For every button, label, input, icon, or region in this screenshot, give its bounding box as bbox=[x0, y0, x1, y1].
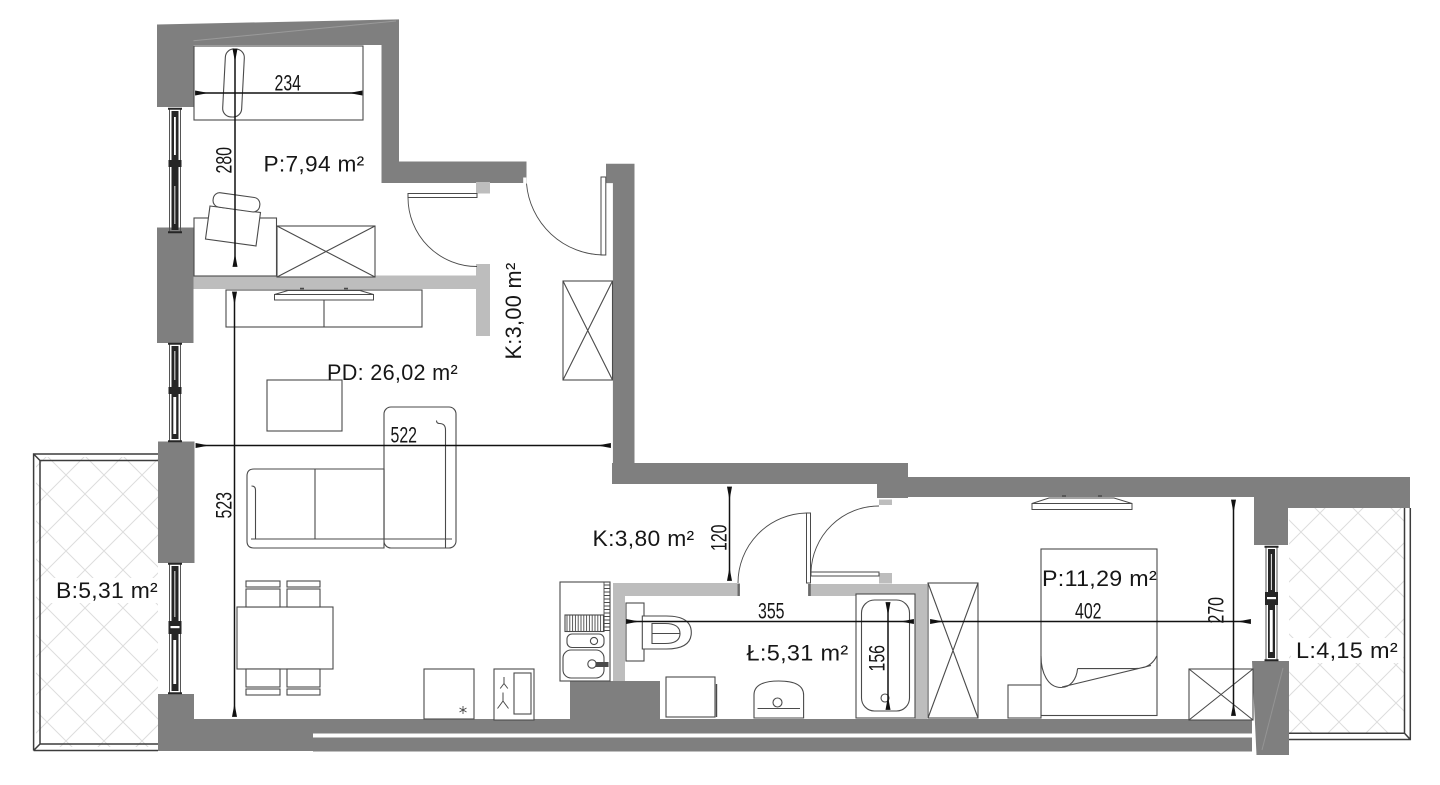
svg-text:L:4,15 m²: L:4,15 m² bbox=[1296, 638, 1398, 663]
svg-text:P:11,29 m²: P:11,29 m² bbox=[1042, 566, 1157, 591]
svg-text:280: 280 bbox=[212, 147, 237, 174]
svg-text:234: 234 bbox=[275, 71, 302, 96]
svg-text:523: 523 bbox=[212, 492, 237, 519]
svg-text:120: 120 bbox=[707, 525, 732, 552]
svg-text:K:3,80 m²: K:3,80 m² bbox=[593, 526, 695, 551]
svg-text:K:3,00 m²: K:3,00 m² bbox=[501, 263, 526, 360]
svg-text:355: 355 bbox=[758, 599, 785, 624]
svg-text:PD: 26,02 m²: PD: 26,02 m² bbox=[327, 360, 458, 385]
svg-text:270: 270 bbox=[1204, 597, 1229, 624]
svg-text:Ł:5,31 m²: Ł:5,31 m² bbox=[747, 641, 849, 666]
svg-text:B:5,31 m²: B:5,31 m² bbox=[56, 578, 158, 603]
svg-text:P:7,94 m²: P:7,94 m² bbox=[264, 152, 365, 177]
svg-text:156: 156 bbox=[865, 645, 890, 672]
svg-text:522: 522 bbox=[391, 423, 418, 448]
svg-text:402: 402 bbox=[1075, 599, 1102, 624]
